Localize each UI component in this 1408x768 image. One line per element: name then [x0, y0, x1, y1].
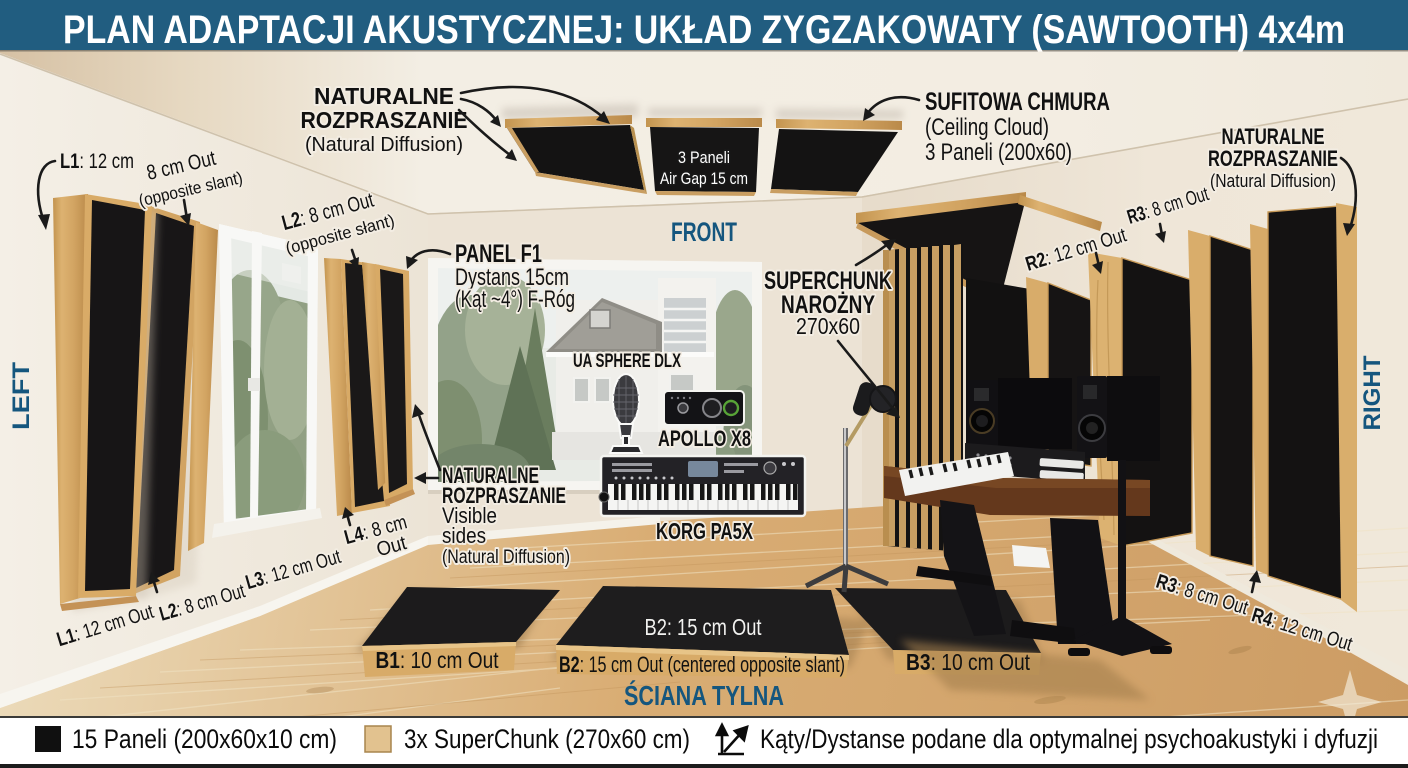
svg-text:(Natural Diffusion): (Natural Diffusion)	[305, 134, 463, 156]
svg-text:B1: 10 cm Out: B1: 10 cm Out	[376, 647, 500, 673]
svg-text:UA SPHERE DLX: UA SPHERE DLX	[573, 351, 681, 372]
svg-text:APOLLO X8: APOLLO X8	[658, 426, 751, 451]
svg-text:ŚCIANA TYLNA: ŚCIANA TYLNA	[624, 680, 784, 711]
svg-text:NATURALNE: NATURALNE	[314, 83, 454, 109]
svg-text:SUFITOWA CHMURA: SUFITOWA CHMURA	[925, 88, 1110, 116]
svg-text:3 Paneli: 3 Paneli	[678, 148, 730, 167]
svg-text:L1: 12 cm: L1: 12 cm	[60, 150, 134, 173]
svg-text:Air Gap 15 cm: Air Gap 15 cm	[660, 169, 748, 188]
svg-text:KORG PA5X: KORG PA5X	[656, 518, 753, 544]
svg-text:B2: 15 cm Out (centered opposi: B2: 15 cm Out (centered opposite slant)	[559, 652, 845, 677]
svg-text:(Ceiling Cloud): (Ceiling Cloud)	[925, 114, 1049, 141]
svg-text:270x60: 270x60	[796, 313, 860, 339]
svg-text:sides: sides	[442, 523, 486, 548]
svg-text:(Natural Diffusion): (Natural Diffusion)	[442, 547, 570, 568]
svg-text:3 Paneli (200x60): 3 Paneli (200x60)	[925, 139, 1072, 166]
svg-text:Kąty/Dystanse podane dla optym: Kąty/Dystanse podane dla optymalnej psyc…	[760, 724, 1378, 754]
svg-text:PLAN ADAPTACJI AKUSTYCZNEJ: UK: PLAN ADAPTACJI AKUSTYCZNEJ: UKŁAD ZYGZAK…	[63, 8, 1345, 52]
svg-text:15 Paneli (200x60x10 cm): 15 Paneli (200x60x10 cm)	[72, 724, 337, 754]
svg-text:RIGHT: RIGHT	[1359, 355, 1386, 430]
svg-text:ROZPRASZANIE: ROZPRASZANIE	[1208, 146, 1338, 171]
svg-text:ROZPRASZANIE: ROZPRASZANIE	[301, 107, 468, 133]
svg-text:3x SuperChunk (270x60 cm): 3x SuperChunk (270x60 cm)	[404, 724, 690, 754]
svg-text:B2: 15 cm Out: B2: 15 cm Out	[645, 614, 762, 640]
svg-text:B3: 10 cm Out: B3: 10 cm Out	[906, 649, 1031, 675]
svg-text:FRONT: FRONT	[671, 217, 737, 247]
svg-text:(Kąt ~4°) F-Róg: (Kąt ~4°) F-Róg	[455, 286, 575, 313]
svg-text:LEFT: LEFT	[8, 362, 35, 430]
svg-text:(Natural Diffusion): (Natural Diffusion)	[1210, 171, 1336, 191]
